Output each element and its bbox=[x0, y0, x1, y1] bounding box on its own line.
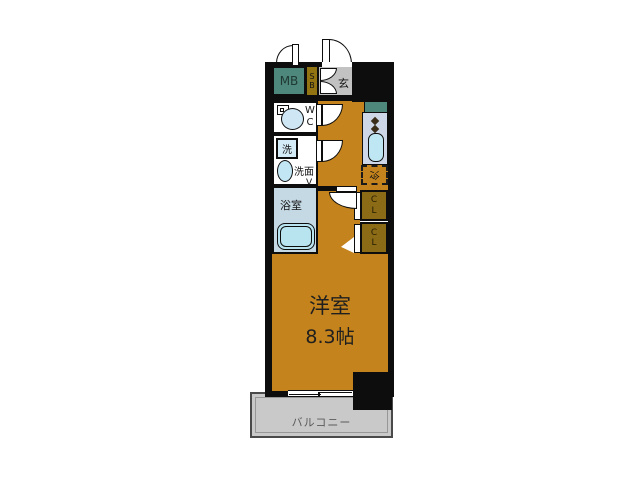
entrance-label: 玄 bbox=[338, 75, 349, 91]
balcony-window bbox=[288, 390, 353, 397]
floor-plan: バルコニー MB S B 玄 W C 洗 洗面 bbox=[0, 0, 640, 480]
wc-label: W C bbox=[305, 105, 315, 128]
washbasin-icon bbox=[277, 160, 293, 182]
washroom-label: 洗面 bbox=[294, 163, 314, 178]
pipe-space-block bbox=[353, 372, 392, 410]
kitchen-sink-icon bbox=[368, 133, 384, 162]
entrance-doorway-gap bbox=[322, 62, 352, 67]
exterior-door-leaf-small bbox=[292, 44, 299, 66]
meter-box-label: MB bbox=[280, 74, 299, 88]
bathroom-label: 浴室 bbox=[280, 197, 302, 213]
folding-door-mark: V bbox=[306, 178, 312, 188]
toilet-bowl-icon bbox=[281, 108, 304, 130]
window-pane-line bbox=[289, 394, 321, 395]
main-room-label: 洋室 8.3帖 bbox=[272, 290, 388, 349]
closet-upper: C L bbox=[360, 190, 388, 221]
window-center-tick bbox=[318, 392, 320, 396]
shoe-box: S B bbox=[306, 66, 318, 96]
washing-machine-icon: 洗 bbox=[276, 138, 298, 159]
bathroom: 浴室 bbox=[272, 186, 318, 254]
washer-label: 洗 bbox=[282, 141, 292, 156]
closet-lower: C L bbox=[360, 222, 388, 254]
closet-upper-label: C L bbox=[371, 195, 377, 216]
exterior-door-swing-small-icon bbox=[276, 45, 293, 63]
main-room-name: 洋室 bbox=[272, 290, 388, 320]
balcony-label: バルコニー bbox=[292, 414, 352, 430]
kitchen-unit bbox=[362, 112, 388, 165]
shoe-box-label: S B bbox=[309, 72, 315, 90]
entrance-door-swing-icon bbox=[329, 39, 352, 64]
wall-left bbox=[265, 62, 272, 397]
closet-door-lower bbox=[354, 224, 361, 253]
window-pane-line bbox=[318, 392, 352, 393]
bathtub-icon bbox=[277, 223, 315, 250]
wc-room: W C bbox=[272, 101, 318, 134]
closet-lower-label: C L bbox=[371, 228, 377, 249]
fridge-label: 冷 bbox=[367, 170, 382, 180]
main-room-size: 8.3帖 bbox=[272, 322, 388, 349]
burner-icon bbox=[371, 125, 379, 133]
meter-box: MB bbox=[272, 66, 306, 96]
wall-right bbox=[388, 62, 394, 397]
fridge-space: 冷 bbox=[361, 165, 388, 185]
